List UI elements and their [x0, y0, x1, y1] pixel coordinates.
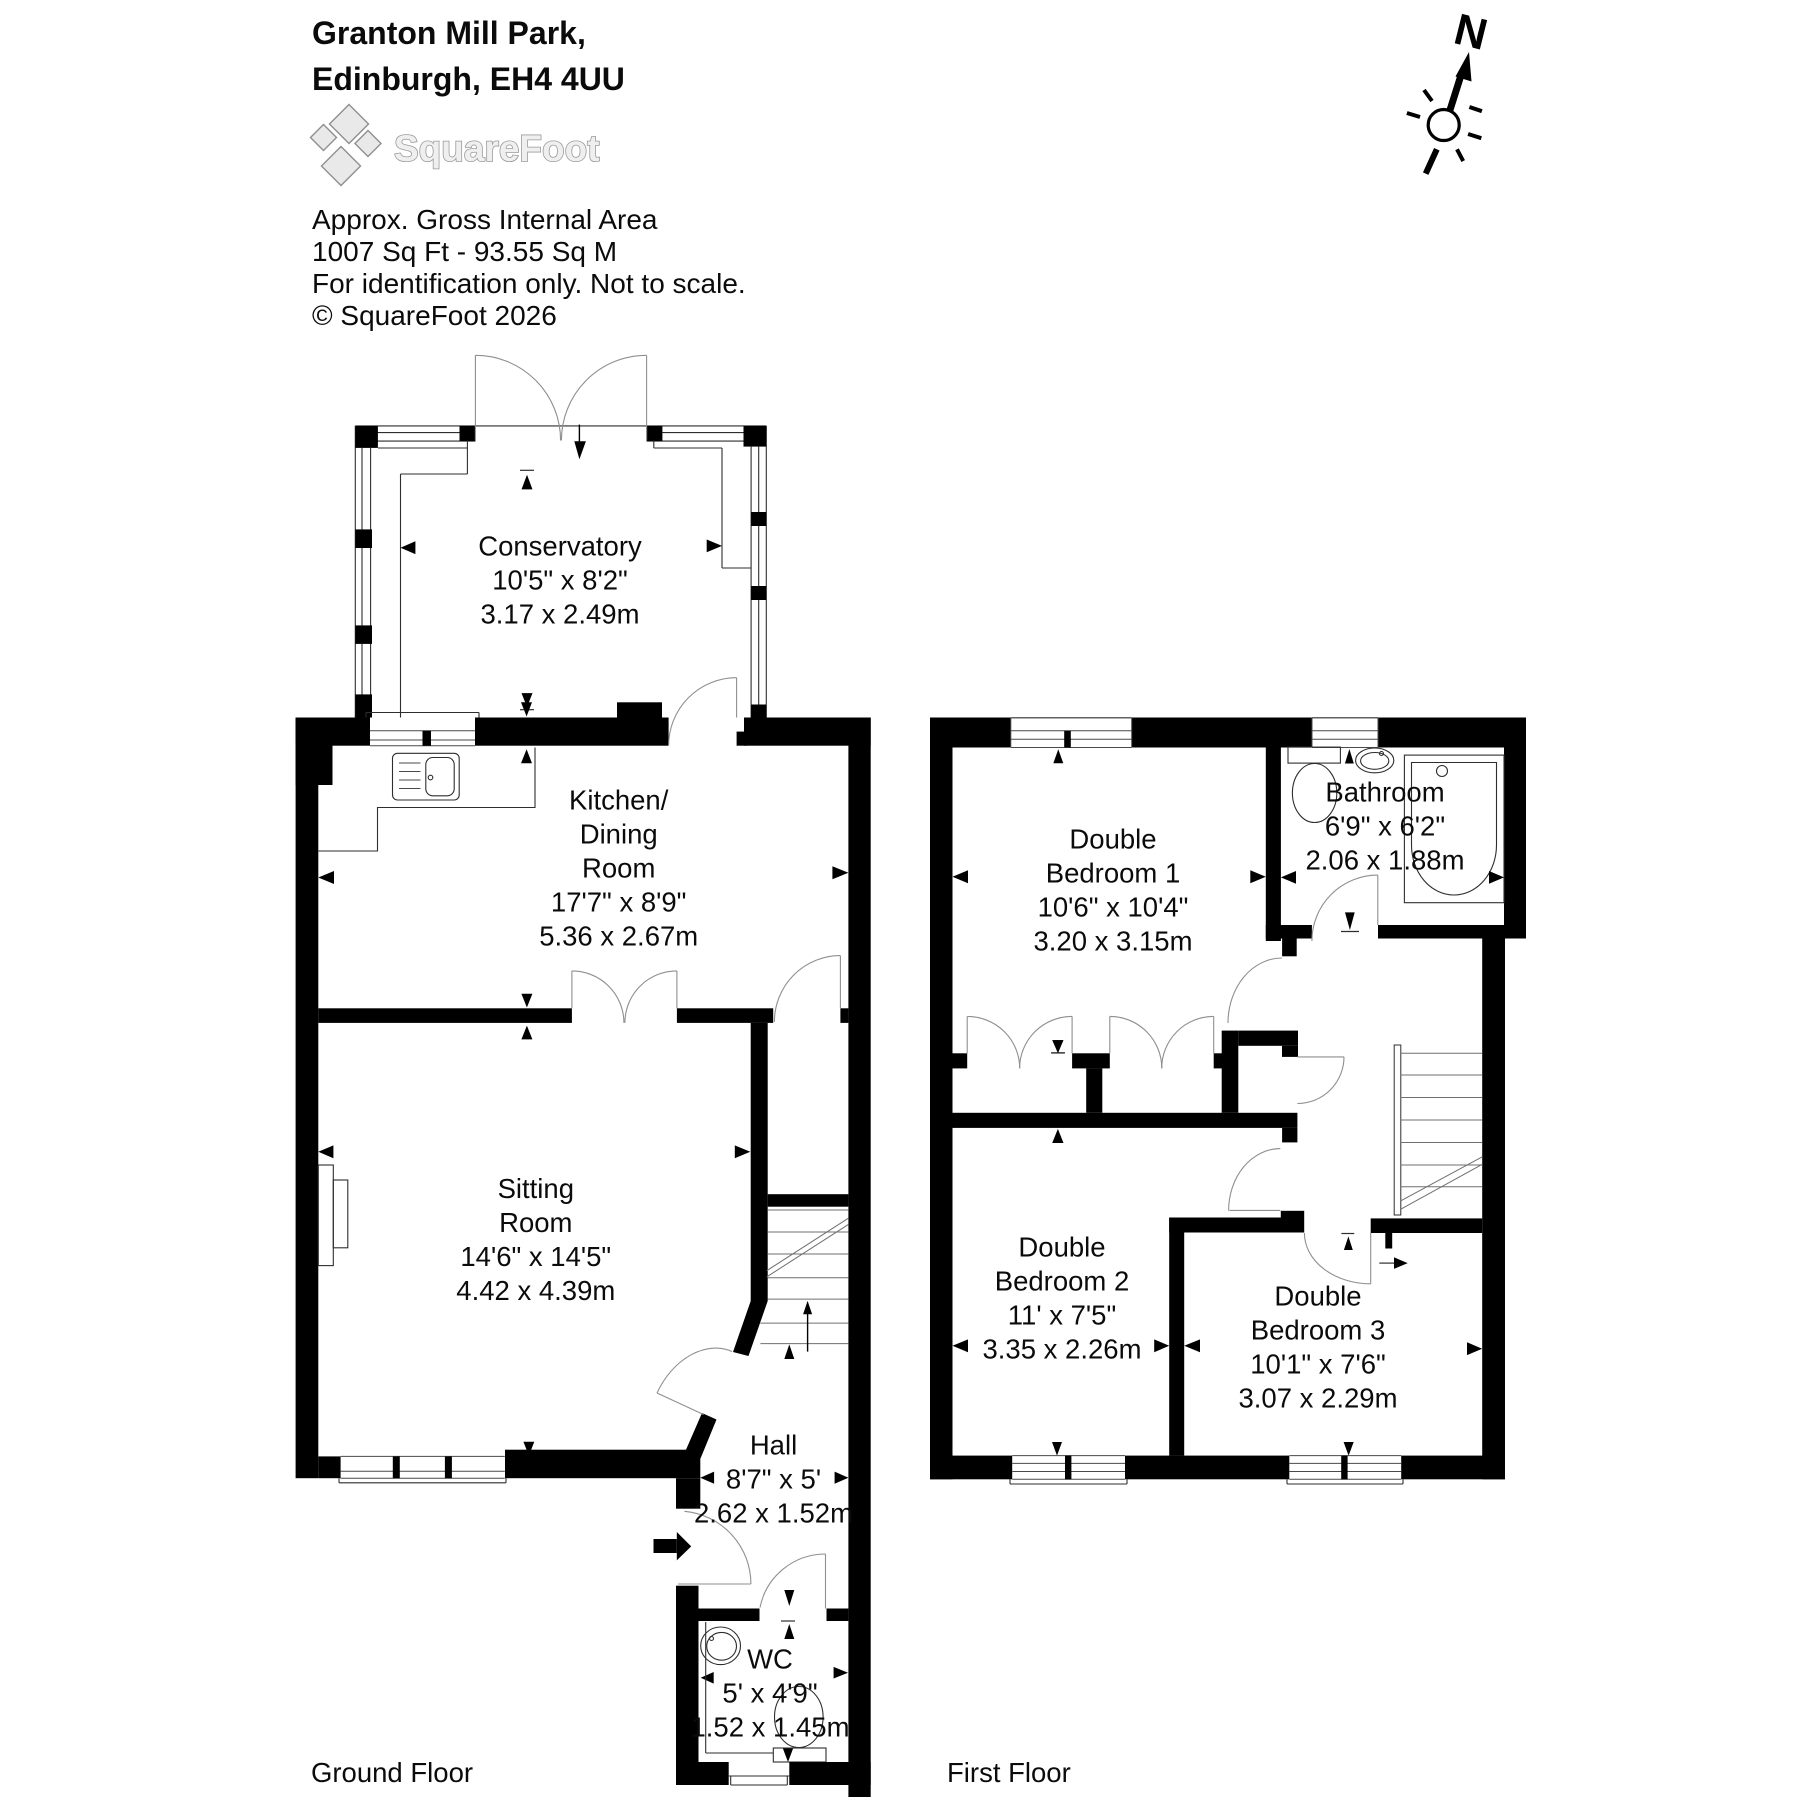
svg-text:5' x 4'9": 5' x 4'9"	[722, 1678, 817, 1709]
svg-text:Bedroom 1: Bedroom 1	[1046, 858, 1181, 889]
svg-text:SquareFoot: SquareFoot	[394, 128, 600, 169]
svg-text:4.42 x 4.39m: 4.42 x 4.39m	[456, 1275, 615, 1306]
svg-text:For identification only. Not t: For identification only. Not to scale.	[312, 268, 746, 299]
svg-text:3.07 x 2.29m: 3.07 x 2.29m	[1239, 1383, 1398, 1414]
svg-text:Sitting: Sitting	[498, 1173, 574, 1204]
svg-text:14'6" x 14'5": 14'6" x 14'5"	[460, 1241, 611, 1272]
svg-text:Granton Mill Park,: Granton Mill Park,	[312, 15, 586, 51]
svg-text:Double: Double	[1018, 1232, 1105, 1263]
svg-text:Ground Floor: Ground Floor	[311, 1757, 473, 1788]
svg-text:11' x 7'5": 11' x 7'5"	[1008, 1300, 1116, 1331]
svg-text:© SquareFoot 2026: © SquareFoot 2026	[312, 300, 557, 331]
svg-text:Room: Room	[499, 1207, 572, 1238]
svg-text:6'9" x 6'2": 6'9" x 6'2"	[1325, 811, 1445, 842]
svg-text:2.62 x 1.52m: 2.62 x 1.52m	[694, 1498, 853, 1529]
svg-text:10'6" x 10'4": 10'6" x 10'4"	[1038, 892, 1189, 923]
svg-text:Double: Double	[1069, 824, 1156, 855]
svg-text:10'1" x 7'6": 10'1" x 7'6"	[1250, 1349, 1386, 1380]
svg-text:1.52 x 1.45m: 1.52 x 1.45m	[691, 1712, 850, 1743]
svg-text:8'7" x 5': 8'7" x 5'	[726, 1464, 821, 1495]
svg-text:First Floor: First Floor	[947, 1757, 1071, 1788]
svg-text:3.17 x 2.49m: 3.17 x 2.49m	[481, 599, 640, 630]
svg-text:Bathroom: Bathroom	[1325, 777, 1444, 808]
svg-text:WC: WC	[747, 1644, 793, 1675]
svg-text:3.35 x 2.26m: 3.35 x 2.26m	[983, 1334, 1142, 1365]
svg-text:17'7" x 8'9": 17'7" x 8'9"	[551, 887, 687, 918]
svg-text:2.06 x 1.88m: 2.06 x 1.88m	[1306, 845, 1465, 876]
svg-text:Conservatory: Conservatory	[478, 531, 642, 562]
svg-text:Bedroom 3: Bedroom 3	[1251, 1315, 1386, 1346]
svg-text:1007 Sq Ft - 93.55 Sq M: 1007 Sq Ft - 93.55 Sq M	[312, 236, 617, 267]
svg-text:Bedroom 2: Bedroom 2	[995, 1266, 1130, 1297]
svg-text:Dining: Dining	[580, 819, 658, 850]
svg-text:Edinburgh, EH4 4UU: Edinburgh, EH4 4UU	[312, 61, 625, 97]
svg-text:Room: Room	[582, 853, 655, 884]
svg-text:3.20 x 3.15m: 3.20 x 3.15m	[1034, 926, 1193, 957]
svg-text:Double: Double	[1274, 1281, 1361, 1312]
svg-text:10'5" x 8'2": 10'5" x 8'2"	[492, 565, 628, 596]
svg-text:Approx. Gross Internal Area: Approx. Gross Internal Area	[312, 204, 658, 235]
svg-text:Hall: Hall	[750, 1430, 797, 1461]
svg-text:Kitchen/: Kitchen/	[569, 785, 669, 816]
svg-text:5.36 x 2.67m: 5.36 x 2.67m	[539, 921, 698, 952]
